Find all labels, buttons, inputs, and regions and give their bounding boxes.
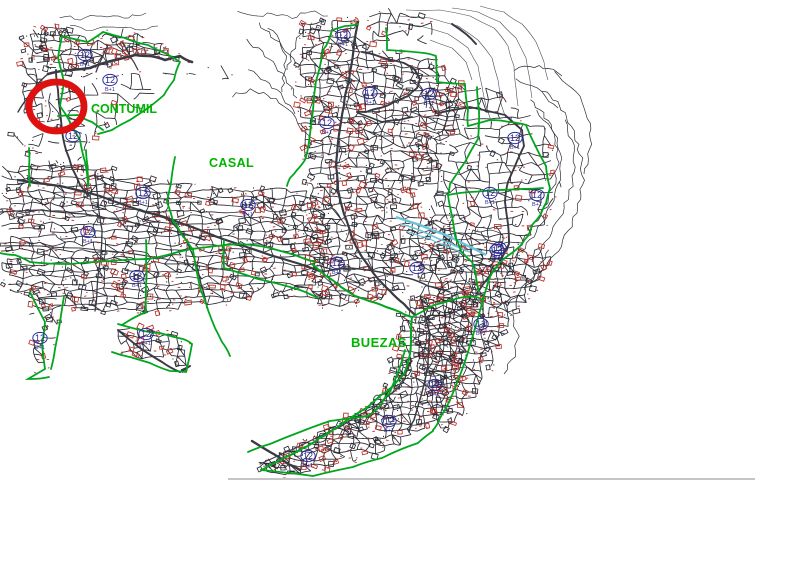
svg-text:12: 12 (532, 190, 542, 200)
svg-text:12: 12 (35, 333, 45, 343)
svg-text:12: 12 (105, 75, 115, 85)
svg-text:B+1: B+1 (365, 100, 375, 106)
svg-text:12: 12 (80, 50, 90, 60)
svg-text:12: 12 (424, 89, 434, 99)
svg-text:B+1: B+1 (105, 87, 115, 93)
svg-text:12: 12 (243, 200, 253, 210)
svg-text:B+1: B+1 (476, 331, 486, 337)
svg-text:12: 12 (476, 319, 486, 329)
svg-text:12: 12 (510, 133, 520, 143)
svg-text:12: 12 (412, 263, 422, 273)
svg-text:12: 12 (138, 188, 148, 198)
svg-text:B+1: B+1 (35, 345, 45, 351)
svg-text:B+1: B+1 (338, 42, 348, 48)
svg-text:12: 12 (132, 271, 142, 281)
svg-text:B+1: B+1 (424, 101, 434, 107)
svg-text:B+1: B+1 (322, 130, 332, 136)
svg-text:B+1: B+1 (384, 428, 394, 434)
svg-text:12: 12 (485, 188, 495, 198)
svg-text:12: 12 (332, 258, 342, 268)
svg-text:B+1: B+1 (80, 62, 90, 68)
svg-text:B+1: B+1 (138, 200, 148, 206)
svg-text:12: 12 (303, 451, 313, 461)
svg-text:B+1: B+1 (132, 283, 142, 289)
svg-text:12: 12 (338, 30, 348, 40)
svg-text:12: 12 (494, 243, 504, 253)
svg-text:12: 12 (365, 88, 375, 98)
svg-text:B+1: B+1 (532, 202, 542, 208)
svg-text:B+1: B+1 (494, 255, 504, 261)
svg-text:12: 12 (384, 416, 394, 426)
svg-text:12: 12 (141, 329, 151, 339)
svg-text:CONTUMIL: CONTUMIL (91, 102, 157, 116)
svg-text:CASAL: CASAL (209, 156, 254, 170)
svg-text:B+1: B+1 (332, 270, 342, 276)
svg-text:12: 12 (83, 227, 93, 237)
svg-text:B+1: B+1 (485, 200, 495, 206)
svg-text:12: 12 (68, 131, 78, 141)
svg-text:B+1: B+1 (510, 145, 520, 151)
svg-text:B+1: B+1 (83, 239, 93, 245)
svg-text:12: 12 (322, 118, 332, 128)
svg-text:12: 12 (430, 380, 440, 390)
svg-text:B+1: B+1 (141, 341, 151, 347)
svg-text:B+1: B+1 (303, 463, 313, 469)
svg-text:B+1: B+1 (243, 212, 253, 218)
svg-text:BUEZAS: BUEZAS (351, 335, 407, 350)
svg-text:B+1: B+1 (430, 392, 440, 398)
